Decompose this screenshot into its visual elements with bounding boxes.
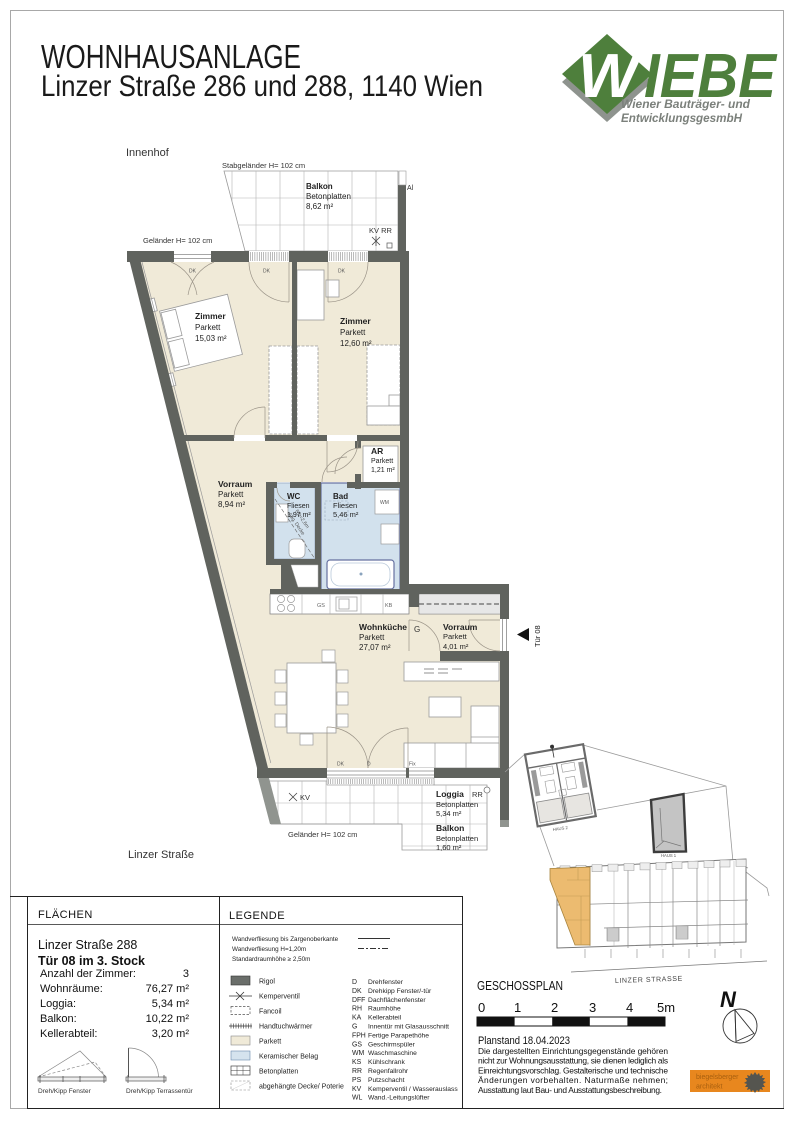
svg-text:KV RR: KV RR bbox=[369, 226, 393, 235]
svg-text:12,60 m²: 12,60 m² bbox=[340, 339, 372, 348]
svg-text:4,01 m²: 4,01 m² bbox=[443, 642, 469, 651]
svg-text:GESCHOSSPLAN: GESCHOSSPLAN bbox=[477, 978, 563, 993]
svg-text:Kühlschrank: Kühlschrank bbox=[368, 1059, 405, 1066]
svg-text:5,34 m²: 5,34 m² bbox=[436, 809, 462, 818]
svg-text:10,22 m²: 10,22 m² bbox=[146, 1013, 190, 1025]
svg-text:Drehkipp Fenster/-tür: Drehkipp Fenster/-tür bbox=[368, 988, 432, 995]
svg-text:DK: DK bbox=[338, 269, 346, 275]
svg-text:5,46 m²: 5,46 m² bbox=[333, 510, 359, 519]
svg-text:DK: DK bbox=[189, 269, 197, 275]
svg-text:architekt: architekt bbox=[696, 1084, 723, 1091]
svg-text:2: 2 bbox=[551, 1000, 558, 1015]
svg-text:Tür 08: Tür 08 bbox=[533, 625, 542, 647]
svg-text:Vorraum: Vorraum bbox=[218, 479, 253, 489]
svg-text:1,97 m²: 1,97 m² bbox=[287, 512, 311, 519]
svg-text:WM: WM bbox=[380, 500, 389, 506]
svg-text:Fliesen: Fliesen bbox=[287, 503, 310, 510]
svg-text:Raumhöhe: Raumhöhe bbox=[368, 1006, 401, 1013]
svg-text:Linzer Straße 288: Linzer Straße 288 bbox=[38, 938, 137, 952]
svg-text:HAUS 1: HAUS 1 bbox=[661, 853, 677, 858]
svg-text:RH: RH bbox=[352, 1006, 362, 1013]
svg-text:Dreh/Kipp Terrassentür: Dreh/Kipp Terrassentür bbox=[126, 1088, 194, 1095]
svg-text:WL: WL bbox=[352, 1095, 363, 1102]
svg-text:Fliesen: Fliesen bbox=[333, 501, 357, 510]
svg-text:biegelsberger: biegelsberger bbox=[696, 1074, 739, 1081]
svg-text:Wohnküche: Wohnküche bbox=[359, 622, 407, 632]
svg-text:KB: KB bbox=[385, 603, 393, 609]
svg-text:RR: RR bbox=[472, 790, 483, 799]
svg-text:Parkett: Parkett bbox=[259, 1039, 281, 1046]
svg-text:0: 0 bbox=[478, 1000, 485, 1015]
svg-text:Wand.-Leitungslüfter: Wand.-Leitungslüfter bbox=[368, 1095, 430, 1102]
svg-text:GS: GS bbox=[352, 1041, 362, 1048]
svg-text:Zimmer: Zimmer bbox=[195, 311, 226, 321]
svg-text:3: 3 bbox=[183, 968, 189, 980]
svg-text:Handtuchwärmer: Handtuchwärmer bbox=[259, 1024, 313, 1031]
svg-text:Zimmer: Zimmer bbox=[340, 316, 371, 326]
svg-text:Geländer H= 102 cm: Geländer H= 102 cm bbox=[288, 830, 357, 839]
svg-text:FPH: FPH bbox=[352, 1032, 366, 1039]
svg-text:27,07 m²: 27,07 m² bbox=[359, 643, 391, 652]
svg-text:DFF: DFF bbox=[352, 997, 365, 1004]
svg-text:8,62 m²: 8,62 m² bbox=[306, 202, 333, 211]
svg-text:Dreh/Kipp Fenster: Dreh/Kipp Fenster bbox=[38, 1088, 92, 1095]
svg-text:KS: KS bbox=[352, 1059, 362, 1066]
svg-text:3: 3 bbox=[589, 1000, 596, 1015]
svg-text:Linzer Straße: Linzer Straße bbox=[128, 849, 194, 861]
svg-text:Fancoil: Fancoil bbox=[259, 1009, 282, 1016]
svg-text:EntwicklungsgesmbH: EntwicklungsgesmbH bbox=[621, 113, 743, 125]
svg-text:Wandverfliesung H=1,20m: Wandverfliesung H=1,20m bbox=[232, 946, 306, 953]
svg-text:LEGENDE: LEGENDE bbox=[229, 910, 285, 922]
svg-text:Fix: Fix bbox=[409, 762, 416, 768]
svg-text:G: G bbox=[414, 625, 420, 634]
svg-text:Betonplatten: Betonplatten bbox=[306, 192, 351, 201]
svg-text:Kellerabteil:: Kellerabteil: bbox=[40, 1028, 97, 1040]
svg-text:DK: DK bbox=[263, 269, 271, 275]
svg-text:Wandverfliesung bis Zargenober: Wandverfliesung bis Zargenoberkante bbox=[232, 936, 339, 943]
svg-text:Linzer Straße 286 und 288, 114: Linzer Straße 286 und 288, 1140 Wien bbox=[41, 70, 483, 103]
svg-text:8,94 m²: 8,94 m² bbox=[218, 500, 245, 509]
svg-text:Parkett: Parkett bbox=[195, 323, 221, 332]
svg-text:Innenhof: Innenhof bbox=[126, 147, 170, 159]
svg-text:1,21 m²: 1,21 m² bbox=[371, 467, 395, 474]
svg-text:Parkett: Parkett bbox=[443, 632, 468, 641]
svg-text:Kemperventil: Kemperventil bbox=[259, 994, 300, 1001]
svg-text:Loggia: Loggia bbox=[436, 789, 464, 799]
svg-text:Vorraum: Vorraum bbox=[443, 622, 478, 632]
svg-text:G: G bbox=[352, 1024, 357, 1031]
svg-text:1: 1 bbox=[514, 1000, 521, 1015]
svg-text:DK: DK bbox=[337, 762, 345, 768]
svg-text:Parkett: Parkett bbox=[218, 490, 244, 499]
svg-text:Einreichtungsvorschlag. Gestal: Einreichtungsvorschlag. Gestalterische u… bbox=[478, 1065, 668, 1075]
svg-text:Anzahl der Zimmer:: Anzahl der Zimmer: bbox=[40, 968, 136, 980]
svg-text:Tür 08 im 3. Stock: Tür 08 im 3. Stock bbox=[38, 954, 145, 968]
svg-text:1,60 m²: 1,60 m² bbox=[436, 843, 462, 852]
svg-text:Ausstattung laut Bau- und Auss: Ausstattung laut Bau- und Ausstattungsbe… bbox=[478, 1085, 662, 1095]
svg-text:Balkon: Balkon bbox=[306, 182, 333, 191]
svg-text:FLÄCHEN: FLÄCHEN bbox=[38, 909, 93, 921]
svg-text:Parkett: Parkett bbox=[359, 633, 385, 642]
svg-text:Putzschacht: Putzschacht bbox=[368, 1077, 405, 1084]
svg-text:WM: WM bbox=[352, 1050, 365, 1057]
svg-text:abgehängte Decke/ Poterie: abgehängte Decke/ Poterie bbox=[259, 1084, 344, 1091]
svg-text:Betonplatten: Betonplatten bbox=[436, 834, 478, 843]
svg-text:Kemperventil / Wasserauslass: Kemperventil / Wasserauslass bbox=[368, 1086, 458, 1093]
svg-text:RR: RR bbox=[352, 1068, 362, 1075]
svg-text:Betonplatten: Betonplatten bbox=[436, 800, 478, 809]
svg-text:Rigol: Rigol bbox=[259, 979, 275, 986]
svg-text:Bad: Bad bbox=[333, 492, 348, 501]
svg-text:KV: KV bbox=[352, 1086, 362, 1093]
svg-text:Die dargestellten Einrichtun: Die dargestellten Einrichtungsgegenständ… bbox=[478, 1046, 668, 1056]
svg-text:Stabgeländer H= 102 cm: Stabgeländer H= 102 cm bbox=[222, 161, 305, 170]
svg-text:Al: Al bbox=[407, 185, 414, 192]
svg-text:KA: KA bbox=[352, 1015, 362, 1022]
svg-text:GS: GS bbox=[317, 603, 325, 609]
svg-text:Geschirmspüler: Geschirmspüler bbox=[368, 1041, 416, 1048]
svg-text:PS: PS bbox=[352, 1077, 362, 1084]
svg-text:Geländer H= 102 cm: Geländer H= 102 cm bbox=[143, 236, 212, 245]
svg-text:Wohnräume:: Wohnräume: bbox=[40, 983, 103, 995]
svg-text:Balkon: Balkon bbox=[436, 823, 464, 833]
svg-text:Drehfenster: Drehfenster bbox=[368, 979, 404, 986]
svg-text:3,20 m²: 3,20 m² bbox=[152, 1028, 190, 1040]
svg-text:Kellerabteil: Kellerabteil bbox=[368, 1015, 402, 1022]
svg-text:DK: DK bbox=[352, 988, 362, 995]
svg-text:15,03 m²: 15,03 m² bbox=[195, 334, 227, 343]
svg-text:Fertige Parapethöhe: Fertige Parapethöhe bbox=[368, 1032, 429, 1039]
svg-text:Loggia:: Loggia: bbox=[40, 998, 76, 1010]
svg-text:76,27 m²: 76,27 m² bbox=[146, 983, 190, 995]
svg-text:Waschmaschine: Waschmaschine bbox=[368, 1050, 417, 1057]
svg-text:Standardraumhöhe ≥ 2,50m: Standardraumhöhe ≥ 2,50m bbox=[232, 956, 310, 963]
svg-text:Parkett: Parkett bbox=[340, 328, 366, 337]
svg-text:nicht zur Wohnungsausstattung,: nicht zur Wohnungsausstattung, sie diene… bbox=[478, 1056, 668, 1066]
svg-text:5,34 m²: 5,34 m² bbox=[152, 998, 190, 1010]
svg-text:Parkett: Parkett bbox=[371, 458, 393, 465]
svg-text:Wiener Bauträger- und: Wiener Bauträger- und bbox=[621, 99, 751, 111]
svg-text:5m: 5m bbox=[657, 1000, 675, 1015]
svg-text:Änderungen vorbehalten. Natu: Änderungen vorbehalten. Naturmaße nehmen… bbox=[478, 1075, 668, 1085]
svg-text:AR: AR bbox=[371, 446, 383, 456]
svg-text:Regenfallrohr: Regenfallrohr bbox=[368, 1068, 409, 1075]
svg-text:Balkon:: Balkon: bbox=[40, 1013, 77, 1025]
svg-text:Innentür mit Glasausschnitt: Innentür mit Glasausschnitt bbox=[368, 1024, 449, 1031]
svg-text:Betonplatten: Betonplatten bbox=[259, 1069, 298, 1076]
svg-text:KV: KV bbox=[300, 793, 310, 802]
svg-text:Dachflächenfenster: Dachflächenfenster bbox=[368, 997, 426, 1004]
svg-text:N: N bbox=[720, 987, 737, 1012]
svg-text:Keramischer Belag: Keramischer Belag bbox=[259, 1054, 318, 1061]
svg-text:D: D bbox=[367, 762, 371, 768]
svg-text:D: D bbox=[352, 979, 357, 986]
svg-text:4: 4 bbox=[626, 1000, 633, 1015]
svg-text:WC: WC bbox=[287, 492, 301, 501]
